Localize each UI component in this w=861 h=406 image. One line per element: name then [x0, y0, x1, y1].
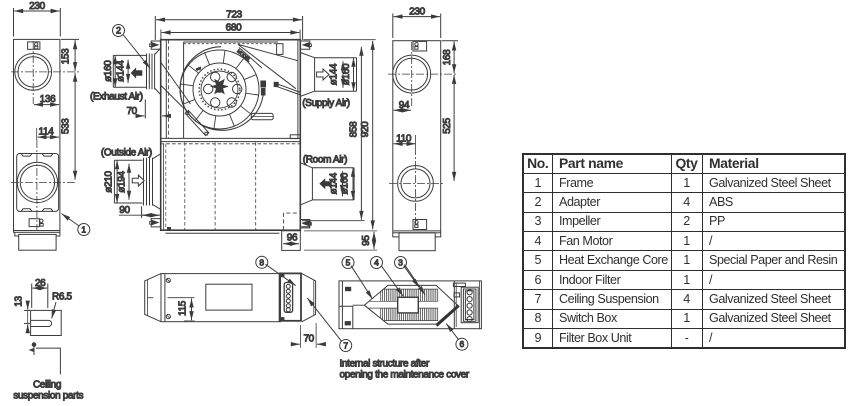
svg-text:ø144: ø144 [329, 172, 340, 194]
svg-text:8: 8 [259, 257, 264, 267]
svg-text:(Exhaust Air): (Exhaust Air) [90, 92, 143, 103]
svg-text:114: 114 [39, 127, 55, 138]
svg-text:(Room Air): (Room Air) [303, 155, 347, 166]
svg-text:680: 680 [226, 22, 242, 33]
svg-text:94: 94 [399, 100, 410, 111]
svg-text:ø160: ø160 [341, 63, 352, 85]
svg-text:suspension parts: suspension parts [13, 390, 83, 401]
svg-text:533: 533 [61, 118, 72, 134]
svg-text:136: 136 [40, 94, 56, 105]
svg-text:1: 1 [81, 225, 86, 235]
svg-text:R6.5: R6.5 [52, 292, 73, 303]
svg-text:(Supply Air): (Supply Air) [302, 98, 350, 109]
svg-text:ø160: ø160 [103, 60, 114, 82]
svg-text:7: 7 [343, 341, 348, 351]
svg-text:90: 90 [119, 205, 130, 216]
svg-text:Ceiling: Ceiling [33, 380, 61, 391]
svg-text:920: 920 [360, 121, 371, 137]
svg-text:70: 70 [126, 106, 137, 117]
svg-text:5: 5 [346, 258, 351, 268]
svg-text:ø144: ø144 [116, 60, 127, 82]
svg-text:ø160: ø160 [340, 172, 351, 194]
svg-text:ø194: ø194 [116, 171, 127, 193]
svg-text:(Outside Air): (Outside Air) [101, 148, 152, 159]
svg-text:MODEL: MODEL [236, 48, 252, 62]
svg-text:13: 13 [14, 296, 25, 307]
svg-text:opening the maintenance cover: opening the maintenance cover [340, 369, 470, 380]
svg-text:6: 6 [460, 339, 465, 349]
svg-text:26: 26 [35, 278, 46, 289]
svg-text:525: 525 [442, 117, 453, 133]
svg-text:Internal structure after: Internal structure after [340, 359, 430, 370]
svg-text:3: 3 [398, 258, 403, 268]
svg-text:110: 110 [396, 133, 412, 144]
svg-text:2: 2 [116, 26, 121, 36]
svg-text:723: 723 [226, 10, 242, 21]
svg-text:95: 95 [361, 235, 372, 246]
svg-text:168: 168 [442, 49, 453, 65]
svg-text:ø210: ø210 [104, 171, 115, 193]
svg-text:230: 230 [29, 1, 45, 12]
svg-text:70: 70 [303, 334, 314, 345]
svg-text:ø144: ø144 [328, 63, 339, 85]
svg-text:96: 96 [287, 233, 298, 244]
svg-text:115: 115 [177, 300, 188, 316]
svg-text:858: 858 [349, 121, 360, 137]
svg-text:153: 153 [61, 48, 72, 64]
svg-text:4: 4 [374, 258, 379, 268]
svg-text:230: 230 [409, 6, 425, 17]
